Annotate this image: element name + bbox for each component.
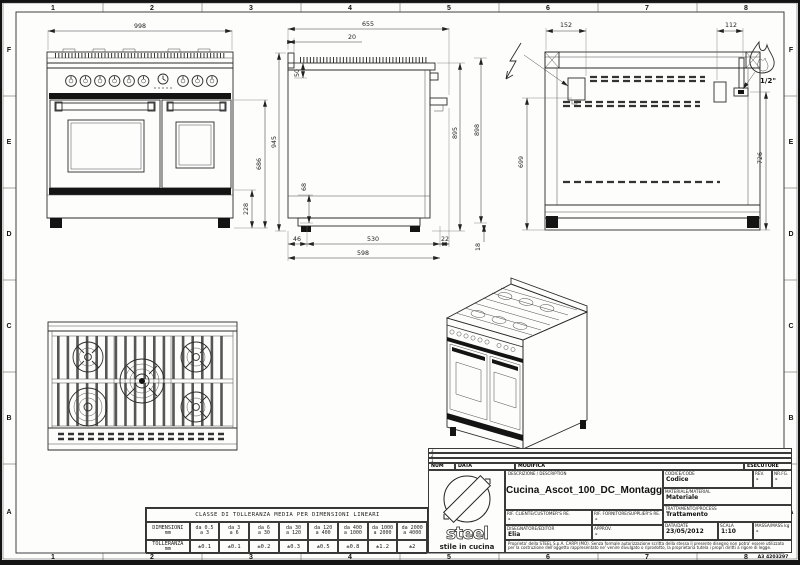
codice-cell: CODICE/CODE Codice (663, 470, 753, 488)
zone-col: 7 (645, 5, 649, 12)
value: - (593, 516, 662, 523)
rev-header-esecutore: ESECUTORE (744, 463, 792, 470)
iso-trim-band-lower (447, 413, 523, 441)
dim-945: 945 (271, 136, 278, 148)
approv-cell: APPROV. - (592, 525, 663, 540)
tolerance-value: ±0.3 (279, 540, 309, 554)
tolerance-value: ±0.1 (219, 540, 249, 554)
rev-header-data: DATA (455, 463, 515, 470)
drawing-sheet: 1 2 3 4 5 6 7 8 1 2 3 4 5 6 7 8 F E D C … (0, 0, 800, 565)
steel-logo: steel stile in cucina (429, 471, 505, 553)
isometric-view (447, 278, 587, 458)
tolerance-value: ±0.8 (338, 540, 368, 554)
zone-row: E (7, 139, 12, 146)
rif-fornitore-cell: RIF. FORNITORE/SUPPLIER'S RE. - (592, 510, 663, 525)
value: - (754, 476, 771, 483)
zone-col: 5 (447, 554, 451, 561)
dim-68: 68 (301, 183, 308, 191)
to: a 120 (286, 531, 301, 537)
zone-col: 3 (249, 554, 253, 561)
zone-col: 4 (348, 5, 352, 12)
zone-numbers-top: 1 2 3 4 5 6 7 8 (51, 5, 748, 12)
back-view: 1/2" 152 112 699 726 (506, 22, 776, 230)
value: - (754, 528, 791, 535)
value: Trattamento (664, 511, 791, 518)
title-block: 3 2 1 NUM DATA MODIFICA ESECUTORE steel … (428, 448, 792, 553)
zone-col: 3 (249, 5, 253, 12)
foot (450, 427, 456, 436)
dim-598: 598 (357, 250, 369, 257)
scale-cell: SCALA 1:10 (718, 522, 753, 540)
iso-handle-right (492, 359, 518, 371)
tolerance-value: ±2 (397, 540, 427, 554)
tolerance-value: ±0.1 (190, 540, 220, 554)
disegnatore-cell: DISEGNATORE/EDITOR Elia (505, 525, 592, 540)
disclaimer-text: Proprieta' della STEEL S.p.A. CARPI (MO)… (506, 541, 791, 551)
oven-doors (50, 100, 231, 188)
zone-row: D (788, 231, 793, 238)
foot (218, 218, 230, 228)
zone-row: B (788, 415, 793, 422)
dim-228: 228 (243, 203, 250, 215)
date-cell: DATA/DATE 23/05/2012 (663, 522, 718, 540)
value: - (506, 516, 591, 523)
zone-col: 5 (447, 5, 451, 12)
tolerance-range: da 6a 30 (249, 522, 279, 540)
label: MASSA/MASS kg (754, 523, 791, 528)
gas-inlet (714, 58, 748, 102)
tolerance-table-title: CLASSE DI TOLLERANZA MEDIA PER DIMENSION… (146, 508, 429, 522)
dim-998: 998 (134, 23, 146, 30)
mass-cell: MASSA/MASS kg - (753, 522, 792, 540)
tolerance-range: da 3a 6 (219, 522, 249, 540)
to: a 4000 (403, 531, 421, 537)
control-knobs (66, 76, 218, 87)
rev-cell: REV. - (753, 470, 772, 488)
dim-895: 895 (452, 127, 459, 139)
disclaimer-cell: Proprieta' della STEEL S.p.A. CARPI (MO)… (505, 540, 792, 553)
zone-col: 8 (744, 554, 748, 561)
tolerance-range: da 2000a 4000 (397, 522, 427, 540)
trim-band-lower (49, 188, 231, 195)
tolerance-range: da 0.5a 3 (190, 522, 220, 540)
zone-col: 7 (645, 554, 649, 561)
zone-row: C (788, 323, 793, 330)
foot (301, 226, 311, 232)
to: a 400 (316, 531, 331, 537)
to: a 6 (230, 531, 239, 537)
tolerance-value: ±0.2 (249, 540, 279, 554)
dim-699: 699 (518, 156, 525, 168)
tolerance-value: ±1.2 (368, 540, 398, 554)
dim-112: 112 (725, 22, 737, 29)
value: 1:10 (719, 528, 752, 535)
tolerance-range: da 120a 400 (308, 522, 338, 540)
label: RIF. FORNITORE/SUPPLIER'S RE. (593, 511, 662, 516)
drawing-title: Cucina_Ascot_100_DC_Montaggio (506, 485, 662, 496)
to: a 30 (258, 531, 270, 537)
tolerance-table: CLASSE DI TOLLERANZA MEDIA PER DIMENSION… (145, 507, 428, 553)
zone-row: C (6, 323, 11, 330)
zone-col: 1 (51, 5, 55, 12)
dim-655: 655 (362, 21, 374, 28)
zone-row: E (789, 139, 794, 146)
zone-col: 8 (744, 5, 748, 12)
foot (50, 218, 62, 228)
zone-letters-right: F E D C B A (788, 47, 793, 516)
tolerance-dim-label: DIMENSIONI mm (146, 522, 190, 540)
foot (546, 216, 558, 228)
value: Codice (664, 476, 752, 483)
tolerance-tol-label: TOLLERANZA mm (146, 540, 190, 554)
to: a 3 (200, 531, 209, 537)
rev-header-modifica: MODIFICA (515, 463, 744, 470)
tolerance-range: da 400a 1000 (338, 522, 368, 540)
burners (69, 342, 211, 426)
foot (410, 226, 420, 232)
logo-subtitle: stile in cucina (440, 543, 495, 551)
foot (580, 420, 586, 429)
trattamento-cell: TRATTAMENTO/PROCESS Trattamento (663, 505, 792, 522)
zone-row: B (6, 415, 11, 422)
dim-686: 686 (256, 158, 263, 170)
dim-898: 898 (474, 124, 481, 136)
tolerance-value: ±0.5 (308, 540, 338, 554)
tolerance-range: da 1000a 2000 (368, 522, 398, 540)
nrfg-cell: NR.FG. - (772, 470, 792, 488)
tolerance-range: da 30a 120 (279, 522, 309, 540)
value: Elia (506, 531, 591, 538)
timer-clock-icon (154, 74, 171, 89)
value: 23/05/2012 (664, 528, 717, 535)
zone-row: F (789, 47, 794, 54)
zone-col: 1 (51, 554, 55, 561)
rev-header-num: NUM (428, 463, 455, 470)
materiale-cell: MATERIALE/MATERIAL Materiale (663, 488, 792, 505)
rif-cliente-cell: RIF. CLIENTE/CUSTOMER'S RE. - (505, 510, 592, 525)
side-view: 655 20 50 945 68 46 530 22 598 895 898 1… (271, 21, 487, 261)
zone-row: F (7, 47, 12, 54)
value: Materiale (664, 494, 791, 501)
electrical-inlet (568, 78, 585, 104)
value: - (593, 531, 662, 538)
zone-letters-left: F E D C B A (6, 47, 11, 516)
zone-col: 6 (546, 5, 550, 12)
dim-152: 152 (560, 22, 572, 29)
logo-text: steel (446, 524, 488, 544)
sheet-code: A3 4203297 (758, 554, 789, 560)
zone-numbers-bottom: 1 2 3 4 5 6 7 8 (51, 554, 748, 561)
value: - (773, 476, 791, 483)
zone-col: 6 (546, 554, 550, 561)
zone-row: A (6, 509, 11, 516)
logo-cell: steel stile in cucina (428, 470, 505, 553)
unit: mm (165, 531, 171, 536)
to: a 1000 (344, 531, 362, 537)
top-view (48, 322, 237, 450)
back-dimensions: 152 112 699 726 (518, 22, 770, 230)
description-label: DESCRIZIONE / DESCRIPTION (506, 471, 662, 477)
dim-46: 46 (293, 236, 301, 243)
dim-50: 50 (294, 69, 301, 77)
dim-18: 18 (475, 243, 482, 251)
dim-726: 726 (757, 152, 764, 164)
dim-22: 22 (441, 236, 449, 243)
dim-20: 20 (348, 34, 356, 41)
zone-col: 2 (150, 5, 154, 12)
description-cell: DESCRIZIONE / DESCRIPTION Cucina_Ascot_1… (505, 470, 663, 510)
wok-burner (120, 359, 164, 403)
unit: mm (165, 547, 171, 552)
front-view: 998 686 228 (47, 23, 268, 228)
zone-col: 4 (348, 554, 352, 561)
zone-row: D (6, 231, 11, 238)
zone-col: 2 (150, 554, 154, 561)
dim-530: 530 (367, 236, 379, 243)
foot (747, 216, 759, 228)
gas-size-label: 1/2" (760, 77, 776, 85)
to: a 2000 (373, 531, 391, 537)
trim-band-upper (49, 93, 231, 99)
